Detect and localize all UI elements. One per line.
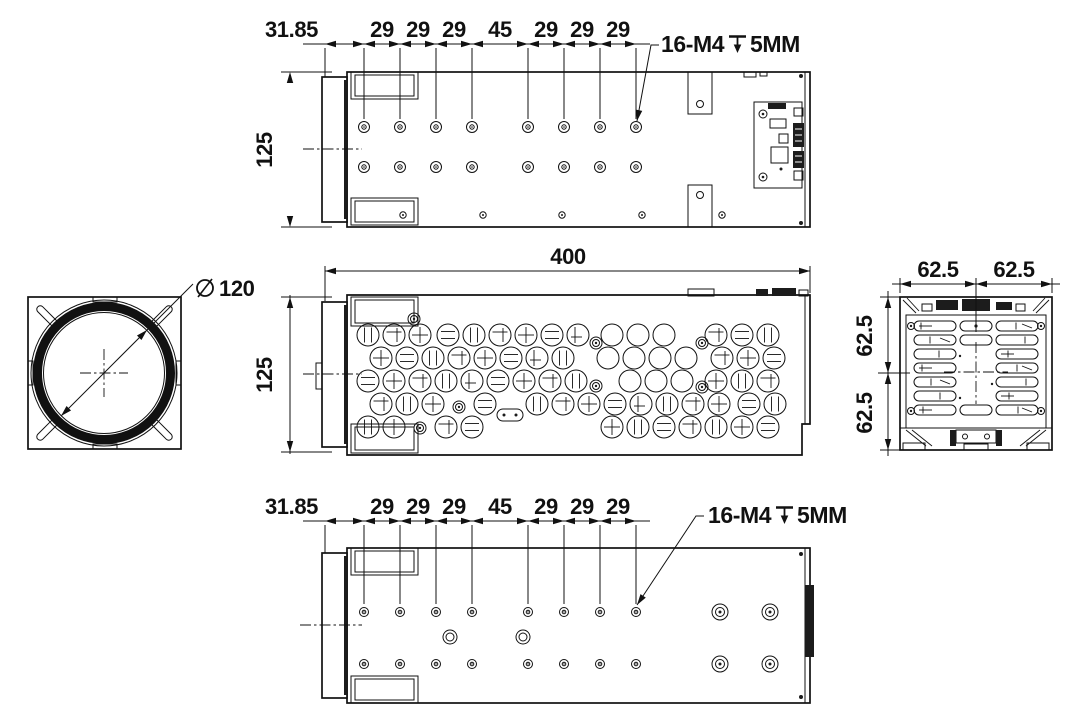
- corner-screw: [799, 221, 803, 225]
- dim-label: 45: [488, 17, 512, 42]
- dim-label: 29: [370, 494, 394, 519]
- top-flange: [322, 77, 347, 222]
- tapped-hole-center: [527, 663, 528, 664]
- dimension-arrow: [900, 281, 911, 287]
- dimension-arrow: [799, 268, 810, 274]
- top-view: 31.85 29 29 29 45 29 29 29 125 16-M4 5MM: [229, 0, 810, 227]
- dimension-arrow: [325, 41, 336, 47]
- side-body-outline: [347, 295, 810, 455]
- tapped-hole-center: [563, 663, 564, 664]
- top-flange-seam: [344, 80, 348, 219]
- rear-connector: [936, 300, 958, 310]
- callout-suffix: 5MM: [797, 502, 847, 528]
- tapped-hole-center: [471, 166, 473, 168]
- flange-tab: [316, 363, 322, 389]
- dimension-arrow: [287, 441, 293, 452]
- panel-screw-dot: [419, 427, 421, 429]
- corner-screw: [799, 695, 803, 699]
- tapped-hole-center: [399, 663, 400, 664]
- tapped-hole-center: [399, 611, 400, 612]
- dim-label: 29: [442, 17, 466, 42]
- dimension-arrow: [287, 297, 293, 308]
- top-connector: [772, 288, 796, 296]
- small-hole-dot: [402, 214, 404, 216]
- panel-screw-dot: [701, 342, 703, 344]
- tapped-hole-center: [435, 611, 436, 612]
- dimension-arrow: [287, 216, 293, 227]
- top-body-outline: [347, 72, 810, 227]
- pcb-dot: [780, 168, 783, 171]
- height-dim-label: 62.5: [852, 392, 877, 433]
- height-dim-label: 62.5: [852, 315, 877, 356]
- pcb-screw-dot: [762, 176, 765, 179]
- bottom-flange-seam: [344, 556, 348, 695]
- technical-drawing-canvas: 31.85 29 29 29 45 29 29 29 125 16-M4 5MM: [0, 0, 1081, 722]
- dim-label: 29: [442, 494, 466, 519]
- pcb-connector: [768, 103, 786, 109]
- small-hole-dot: [721, 214, 723, 216]
- pcb-screw-dot: [762, 113, 765, 116]
- tapped-hole-center: [471, 126, 473, 128]
- mount-hole-center: [719, 611, 722, 614]
- small-hole-dot: [482, 214, 484, 216]
- rear-corner-screw-dot: [1040, 325, 1042, 327]
- mount-hole-center: [719, 663, 722, 666]
- tapped-hole-center: [363, 166, 365, 168]
- corner-screw: [799, 74, 803, 78]
- tapped-hole-center: [435, 166, 437, 168]
- dimension-arrow: [325, 518, 336, 524]
- dim-label: 29: [534, 494, 558, 519]
- front-view: 120: [28, 276, 255, 449]
- callout-suffix: 5MM: [750, 31, 800, 57]
- diameter-symbol-icon: [197, 279, 213, 297]
- tapped-hole-center: [435, 126, 437, 128]
- tapped-hole-center: [635, 126, 637, 128]
- tapped-hole-center: [599, 126, 601, 128]
- panel-dot: [959, 397, 961, 399]
- dimension-arrow: [885, 439, 891, 450]
- dimension-arrow: [885, 297, 891, 308]
- tapped-hole-center: [527, 166, 529, 168]
- dim-label: 29: [606, 494, 630, 519]
- foot-clamp: [996, 430, 1002, 446]
- depth-symbol-icon: [776, 508, 793, 525]
- length-dim-label: 400: [550, 244, 586, 269]
- dim-label: 31.85: [265, 494, 318, 519]
- width-dim-label: 62.5: [917, 257, 958, 282]
- foot-clamp: [950, 430, 956, 446]
- tapped-hole-center: [363, 611, 364, 612]
- callout-prefix: 16-M4: [661, 31, 725, 57]
- depth-symbol-icon: [729, 37, 746, 54]
- tapped-hole-center: [635, 166, 637, 168]
- dimension-arrow: [517, 41, 528, 47]
- side-flange: [322, 302, 347, 447]
- tapped-hole-center: [563, 166, 565, 168]
- rear-connector-edge: [805, 585, 814, 657]
- corner-screw: [799, 552, 803, 556]
- depth-arrow: [734, 45, 742, 54]
- panel-screw-dot: [413, 318, 415, 320]
- tapped-hole-center: [635, 611, 636, 612]
- tapped-hole-center: [635, 663, 636, 664]
- tapped-hole-center: [563, 126, 565, 128]
- rear-connector: [996, 302, 1012, 310]
- dim-label: 29: [406, 494, 430, 519]
- dimension-arrow: [353, 518, 364, 524]
- dim-label: 29: [406, 17, 430, 42]
- dim-label: 29: [570, 494, 594, 519]
- tapped-hole-center: [471, 663, 472, 664]
- rear-corner-screw-dot: [910, 410, 912, 412]
- panel-screw-dot: [595, 342, 597, 344]
- tapped-hole-center: [399, 126, 401, 128]
- diameter-value: 120: [219, 276, 255, 301]
- panel-screw-dot: [595, 385, 597, 387]
- rear-corner-screw-dot: [1040, 410, 1042, 412]
- oval-slot-dot: [515, 414, 518, 417]
- dimension-arrow: [885, 373, 891, 384]
- mount-hole-center: [769, 663, 772, 666]
- height-dim-label: 125: [252, 132, 277, 168]
- dimension-arrow: [287, 72, 293, 83]
- tapped-hole-center: [471, 611, 472, 612]
- dim-label: 29: [606, 17, 630, 42]
- small-hole-dot: [561, 214, 563, 216]
- dimension-arrow: [353, 41, 364, 47]
- panel-screw-dot: [701, 386, 703, 388]
- rear-view: 62.5 62.5 62.5 62.5: [852, 257, 1060, 456]
- dimension-arrow: [472, 41, 483, 47]
- height-dim-label: 125: [252, 357, 277, 393]
- dim-label: 29: [370, 17, 394, 42]
- small-hole-dot: [641, 214, 643, 216]
- dimension-arrow: [885, 362, 891, 373]
- rear-corner-screw-dot: [910, 325, 912, 327]
- dim-label: 29: [534, 17, 558, 42]
- tapped-hole-center: [527, 611, 528, 612]
- dim-label: 31.85: [265, 17, 318, 42]
- tapped-hole-center: [363, 663, 364, 664]
- dimension-arrow: [325, 268, 336, 274]
- dim-label: 45: [488, 494, 512, 519]
- tapped-hole-center: [599, 166, 601, 168]
- top-connector: [756, 289, 768, 296]
- tapped-hole-center: [363, 126, 365, 128]
- callout-prefix: 16-M4: [708, 502, 772, 528]
- width-dim-label: 62.5: [993, 257, 1034, 282]
- side-view: 400 125: [252, 244, 810, 455]
- oval-slot-dot: [503, 414, 506, 417]
- mount-hole-center: [769, 611, 772, 614]
- dimension-arrow: [976, 281, 987, 287]
- panel-dot: [991, 383, 993, 385]
- panel-dot: [959, 355, 961, 357]
- tapped-hole-center: [599, 663, 600, 664]
- dimension-arrow: [472, 518, 483, 524]
- drawing-svg: 31.85 29 29 29 45 29 29 29 125 16-M4 5MM: [0, 0, 1081, 722]
- bottom-flange: [322, 553, 347, 698]
- side-flange-seam: [344, 305, 348, 444]
- panel-screw-dot: [458, 406, 460, 408]
- dimension-arrow: [517, 518, 528, 524]
- bottom-view: 31.85 29 29 29 45 29 29 29 16-M4 5MM: [265, 494, 847, 703]
- dim-label: 29: [570, 17, 594, 42]
- tapped-hole-center: [599, 611, 600, 612]
- tapped-hole-center: [563, 611, 564, 612]
- io-connector: [793, 151, 804, 168]
- bottom-body-outline: [347, 548, 810, 703]
- tapped-hole-center: [527, 126, 529, 128]
- tapped-hole-center: [399, 166, 401, 168]
- tapped-hole-center: [435, 663, 436, 664]
- dimension-arrow: [965, 281, 976, 287]
- dimension-arrow: [1041, 281, 1052, 287]
- depth-arrow: [781, 516, 789, 525]
